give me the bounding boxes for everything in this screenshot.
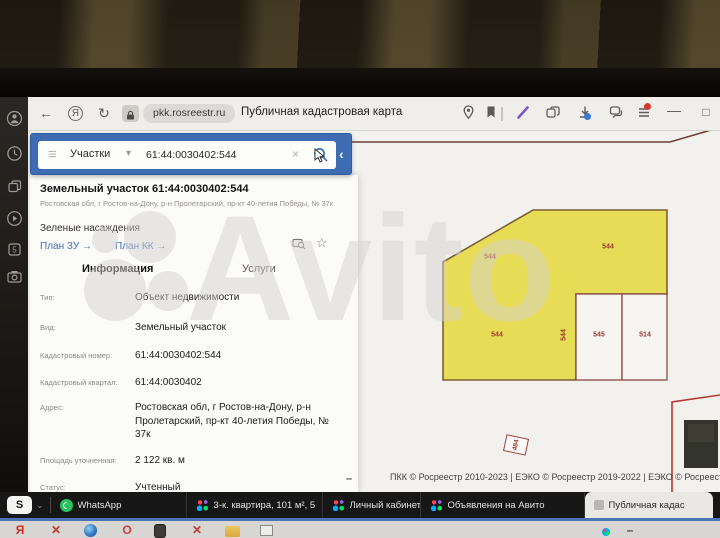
parcel-category: Зеленые насаждения bbox=[40, 223, 140, 234]
chevron-down-icon[interactable]: ⌄ bbox=[36, 500, 44, 511]
tab-label: Объявления на Авито bbox=[448, 500, 545, 511]
taskbar-icon[interactable]: Я bbox=[12, 523, 28, 538]
play-icon[interactable] bbox=[6, 210, 23, 227]
map-attribution: ПКК © Росреестр 2010-2023 | ЕЭКО © Росре… bbox=[390, 472, 720, 482]
lock-icon[interactable] bbox=[122, 105, 139, 122]
collapse-panel-icon[interactable]: ‹ bbox=[339, 146, 344, 162]
parcel-number-label: 544 bbox=[602, 244, 614, 251]
clock-icon[interactable] bbox=[6, 145, 23, 162]
tab-favicon bbox=[430, 499, 443, 512]
field-label: Адрес: bbox=[40, 403, 135, 412]
search-field-group: ≡ Участки ▾ × bbox=[38, 141, 336, 169]
tab-label: 3-к. квартира, 101 м², 5 bbox=[214, 500, 316, 511]
chat-icon[interactable] bbox=[606, 105, 626, 125]
clear-search-icon[interactable]: × bbox=[292, 147, 299, 161]
download-icon[interactable] bbox=[575, 105, 595, 125]
laptop-bezel bbox=[0, 68, 720, 97]
pen-icon[interactable] bbox=[513, 105, 533, 125]
taskbar-icon[interactable] bbox=[154, 524, 166, 538]
download-badge bbox=[584, 113, 591, 120]
boundary-line-top bbox=[352, 131, 718, 142]
parcel-subtitle-address: Ростовская обл, г Ростов-на-Дону, р-н Пр… bbox=[40, 199, 340, 209]
taskbar-icon[interactable] bbox=[260, 525, 273, 536]
satellite-patch-highlight bbox=[688, 424, 714, 442]
map-viewport[interactable]: 544544544544545514484 ПКК © Росреестр 20… bbox=[28, 131, 720, 492]
search-input[interactable] bbox=[144, 145, 282, 165]
parcel-number-label: 544 bbox=[484, 254, 496, 261]
mouse-cursor bbox=[314, 148, 327, 169]
parcel-title: Земельный участок 61:44:0030402:544 bbox=[40, 183, 249, 195]
taskbar-icon[interactable]: ✕ bbox=[48, 523, 64, 538]
area-search-icon[interactable] bbox=[292, 237, 306, 255]
browser-toolbar: ← Я ↻ pkk.rosreestr.ru Публичная кадастр… bbox=[28, 97, 720, 131]
browser-tab[interactable]: Объявления на Авито bbox=[421, 492, 585, 518]
parcel-number-label: 544 bbox=[491, 332, 503, 339]
browser-tab[interactable]: Публичная кадас bbox=[585, 492, 713, 518]
browser-tab[interactable]: 3-к. квартира, 101 м², 5 bbox=[187, 492, 323, 518]
tab-favicon bbox=[196, 499, 209, 512]
search-panel: ≡ Участки ▾ × ‹ bbox=[30, 133, 352, 175]
tab-label: WhatsApp bbox=[78, 500, 122, 511]
search-category-select[interactable]: Участки bbox=[70, 148, 110, 160]
panel-tab[interactable]: Услуги bbox=[242, 263, 276, 275]
tab-label: Личный кабинет - Мо bbox=[350, 500, 420, 511]
panel-tab[interactable]: Информация bbox=[82, 263, 153, 275]
taskbar-icon[interactable] bbox=[225, 526, 240, 537]
field-value: 61:44:0030402 bbox=[135, 376, 343, 390]
collections-icon[interactable] bbox=[543, 105, 563, 125]
background-curtain bbox=[0, 0, 720, 75]
taskbar-icon[interactable] bbox=[602, 528, 610, 536]
parcel-number-label: 514 bbox=[639, 332, 651, 339]
tab-favicon bbox=[594, 500, 604, 510]
tab-favicon bbox=[332, 499, 345, 512]
field-label: Статус: bbox=[40, 483, 135, 492]
svg-text:5: 5 bbox=[12, 246, 17, 255]
field-value: 2 122 кв. м bbox=[135, 454, 343, 468]
back-icon[interactable]: ← bbox=[36, 104, 56, 124]
field-label: Площадь уточненная: bbox=[40, 456, 135, 465]
plan-link[interactable]: План КК → bbox=[115, 241, 166, 252]
field-value: Земельный участок bbox=[135, 321, 343, 335]
field-label: Кадастровый номер: bbox=[40, 351, 135, 360]
tab-label: Публичная кадас bbox=[609, 500, 685, 511]
browser-tab-bar: S ⌄ WhatsApp 3-к. квартира, 101 м², 5 bbox=[0, 492, 720, 518]
parcel-number-label: 544 bbox=[561, 329, 568, 341]
user-icon[interactable] bbox=[6, 110, 23, 127]
minimize-button[interactable]: — bbox=[664, 101, 684, 121]
field-label: Вид: bbox=[40, 323, 135, 332]
tabs: WhatsApp 3-к. квартира, 101 м², 5 Личный… bbox=[51, 492, 713, 518]
field-label: Кадастровый квартал: bbox=[40, 378, 135, 387]
parcel-info-panel: Земельный участок 61:44:0030402:544 Рост… bbox=[30, 175, 358, 492]
field-value: Объект недвижимости bbox=[135, 291, 343, 305]
yandex-badge-icon[interactable]: Я bbox=[68, 106, 83, 121]
taskbar-icon[interactable]: ✕ bbox=[189, 523, 205, 538]
bookmark-icon[interactable] bbox=[481, 105, 501, 125]
pinned-tab-icon[interactable]: S bbox=[7, 496, 32, 514]
five-icon[interactable]: 5 bbox=[6, 241, 23, 258]
chevron-down-icon[interactable]: ▾ bbox=[126, 148, 131, 159]
pinned-tab[interactable]: S ⌄ bbox=[0, 492, 50, 518]
maximize-button[interactable]: □ bbox=[696, 103, 716, 123]
browser-tab[interactable]: Личный кабинет - Мо bbox=[323, 492, 421, 518]
taskbar-strip: Я✕O✕– bbox=[0, 521, 720, 538]
panel-resize-dash: – bbox=[346, 473, 352, 485]
taskbar-icon[interactable]: O bbox=[119, 523, 135, 538]
taskbar-icon[interactable]: – bbox=[622, 523, 638, 538]
field-label: Тип: bbox=[40, 293, 135, 302]
url-box[interactable]: pkk.rosreestr.ru bbox=[143, 104, 235, 123]
side-toolbar: 5 bbox=[0, 97, 28, 492]
windows-icon[interactable] bbox=[6, 178, 23, 195]
field-value: Учтенный bbox=[135, 481, 343, 492]
location-pin-icon[interactable] bbox=[458, 105, 478, 125]
photo-of-laptop-screen: 5 ← Я ↻ pkk.rosreestr.ru Публичная кадас… bbox=[0, 0, 720, 538]
page-title: Публичная кадастровая карта bbox=[241, 106, 402, 118]
browser-window: ← Я ↻ pkk.rosreestr.ru Публичная кадастр… bbox=[28, 97, 720, 492]
plan-link[interactable]: План ЗУ → bbox=[40, 241, 92, 252]
browser-tab[interactable]: WhatsApp bbox=[51, 492, 187, 518]
laptop-screen: 5 ← Я ↻ pkk.rosreestr.ru Публичная кадас… bbox=[0, 97, 720, 538]
parcel-number-label: 545 bbox=[593, 332, 605, 339]
refresh-icon[interactable]: ↻ bbox=[94, 104, 114, 124]
field-value: 61:44:0030402:544 bbox=[135, 349, 343, 363]
favorite-star-icon[interactable]: ☆ bbox=[316, 235, 328, 251]
taskbar-icon[interactable] bbox=[84, 524, 97, 537]
menu-icon[interactable] bbox=[634, 105, 654, 125]
field-value: Ростовская обл, г Ростов-на-Дону, р-н Пр… bbox=[135, 401, 343, 442]
toolbar-divider bbox=[501, 107, 503, 121]
tab-favicon bbox=[60, 499, 73, 512]
camera-icon[interactable] bbox=[6, 268, 23, 285]
menu-badge bbox=[644, 103, 651, 110]
layers-menu-icon[interactable]: ≡ bbox=[48, 147, 57, 162]
